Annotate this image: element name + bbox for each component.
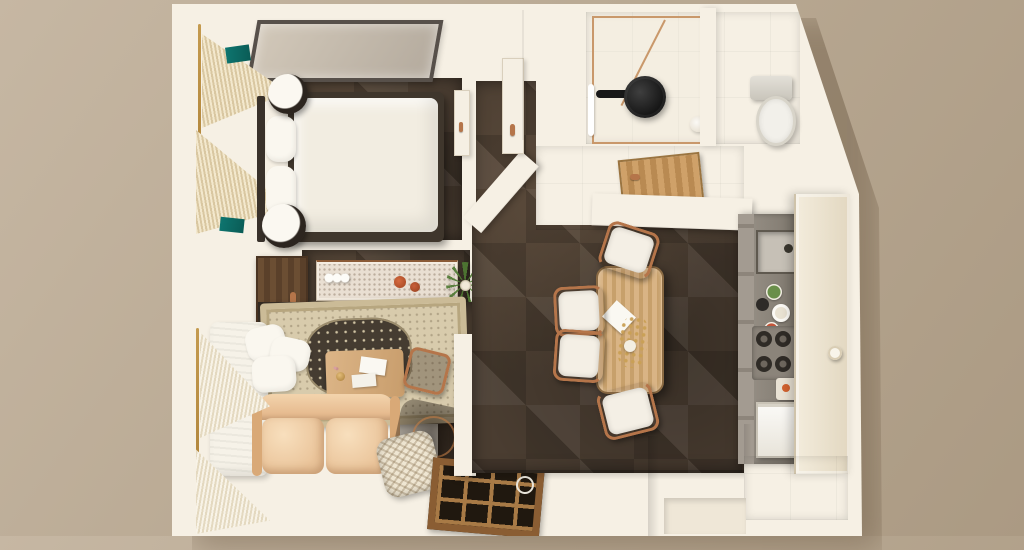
rain-shower-head [624, 76, 666, 118]
chair-cushion [558, 334, 601, 379]
coffee-table-book-2 [351, 373, 376, 388]
burner [775, 331, 791, 347]
burner [775, 356, 791, 372]
nightstand-bottom [262, 204, 306, 248]
flower-sprig [330, 364, 340, 372]
chair-cushion [601, 386, 655, 436]
bedroom-door-handle [459, 122, 463, 132]
sink-faucet [784, 244, 793, 253]
tall-cabinet-door [794, 194, 850, 474]
console-bowl-1 [394, 276, 406, 288]
wall-shadow-2 [744, 424, 756, 456]
burner [756, 331, 772, 347]
teal-accent-bottom [219, 217, 244, 233]
apartment-floor-plan [172, 4, 862, 536]
board-handle [782, 384, 790, 392]
sofa [252, 394, 400, 482]
throw-pillow-3 [251, 355, 297, 394]
chair-cushion [602, 225, 656, 275]
plate-white [772, 304, 790, 322]
kitchen-lower-floor [744, 456, 848, 520]
gas-cooktop [752, 326, 796, 380]
bed-duvet [294, 98, 438, 232]
chair-cushion [558, 290, 600, 332]
plant-pot [460, 280, 471, 291]
sofa-back [258, 394, 394, 420]
gold-vase [336, 372, 345, 381]
towel-bar [588, 84, 594, 136]
vestibule-door-handle [630, 174, 640, 180]
bathroom-door [502, 58, 524, 154]
entry-step-shadow [472, 470, 744, 480]
sofa-seat-1 [262, 418, 324, 474]
plate-dark [756, 298, 769, 311]
console-bottles [324, 270, 350, 286]
plate-green [766, 284, 782, 300]
bath-divider-wall [700, 8, 716, 146]
console-bowl-2 [410, 282, 420, 292]
wall-shadow-1 [648, 436, 664, 540]
wall-recess [664, 498, 746, 534]
burner [756, 356, 772, 372]
centerpiece-plate [624, 340, 636, 352]
dining-chair-left-2 [552, 328, 606, 383]
closet-seam [522, 10, 524, 140]
nightstand-top [268, 74, 308, 114]
glass-ceiling-panel [247, 20, 444, 82]
bathroom-door-handle [510, 124, 515, 136]
cabinet-door-handle [828, 346, 842, 360]
toilet-bowl [756, 96, 796, 146]
bed-pillow-1 [266, 116, 296, 162]
teal-accent-top [225, 44, 251, 63]
